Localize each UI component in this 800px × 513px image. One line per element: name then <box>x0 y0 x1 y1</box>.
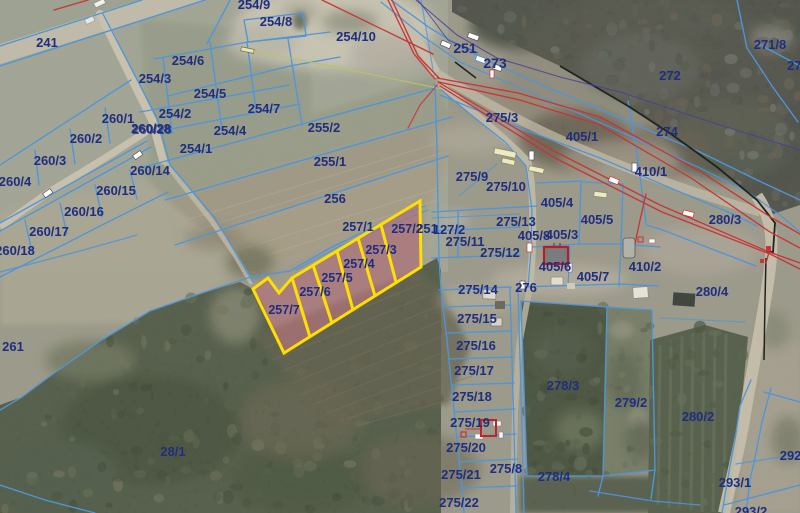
svg-text:260/17: 260/17 <box>29 224 69 239</box>
svg-text:257/7: 257/7 <box>268 303 299 317</box>
svg-text:275/12: 275/12 <box>480 245 520 260</box>
svg-text:254/5: 254/5 <box>194 86 227 101</box>
svg-text:405/5: 405/5 <box>581 212 614 227</box>
svg-text:405/4: 405/4 <box>541 195 574 210</box>
svg-text:260/4: 260/4 <box>0 174 32 189</box>
svg-text:405/6: 405/6 <box>539 259 572 274</box>
svg-text:260/3: 260/3 <box>34 153 67 168</box>
svg-text:255/2: 255/2 <box>308 120 341 135</box>
svg-text:275/3: 275/3 <box>486 110 519 125</box>
svg-text:278/4: 278/4 <box>538 469 571 484</box>
svg-text:275/11: 275/11 <box>445 234 484 249</box>
svg-text:405/1: 405/1 <box>566 129 599 144</box>
svg-text:293/1: 293/1 <box>719 475 752 490</box>
svg-text:280/2: 280/2 <box>682 409 715 424</box>
svg-text:275/17: 275/17 <box>454 363 494 378</box>
svg-text:410/2: 410/2 <box>629 259 662 274</box>
svg-text:274: 274 <box>656 124 678 139</box>
svg-text:254/3: 254/3 <box>139 71 172 86</box>
svg-text:255/1: 255/1 <box>314 154 347 169</box>
svg-text:254/4: 254/4 <box>214 123 247 138</box>
svg-text:293/2: 293/2 <box>735 504 768 513</box>
svg-text:256: 256 <box>324 191 346 206</box>
svg-text:410/1: 410/1 <box>635 164 668 179</box>
svg-text:275/13: 275/13 <box>496 214 536 229</box>
svg-text:275/10: 275/10 <box>486 179 526 194</box>
svg-text:278/3: 278/3 <box>547 378 580 393</box>
svg-text:254/10: 254/10 <box>336 29 376 44</box>
svg-text:275/19: 275/19 <box>450 415 490 430</box>
svg-text:257/1: 257/1 <box>342 220 373 234</box>
svg-text:275/14: 275/14 <box>458 282 499 297</box>
svg-text:280/4: 280/4 <box>696 284 729 299</box>
svg-text:260/28: 260/28 <box>132 122 172 137</box>
svg-text:28/1: 28/1 <box>160 444 185 459</box>
svg-text:405/7: 405/7 <box>577 269 610 284</box>
svg-text:275/22: 275/22 <box>439 495 479 510</box>
svg-text:254/2: 254/2 <box>159 106 192 121</box>
svg-text:273: 273 <box>483 55 507 71</box>
svg-text:276: 276 <box>515 280 537 295</box>
svg-text:254/9: 254/9 <box>238 0 271 12</box>
svg-text:260/15: 260/15 <box>96 183 136 198</box>
svg-text:261: 261 <box>2 339 24 354</box>
svg-text:275/8: 275/8 <box>490 461 523 476</box>
svg-text:241: 241 <box>36 35 58 50</box>
svg-text:260/1: 260/1 <box>102 111 135 126</box>
svg-text:275/15: 275/15 <box>457 311 497 326</box>
svg-text:275/16: 275/16 <box>456 338 496 353</box>
svg-text:271/8: 271/8 <box>754 37 787 52</box>
svg-text:257/6: 257/6 <box>299 285 330 299</box>
svg-text:260/2: 260/2 <box>70 131 103 146</box>
svg-text:292/3: 292/3 <box>780 448 800 463</box>
svg-text:257/4: 257/4 <box>343 257 374 271</box>
svg-text:279/2: 279/2 <box>615 395 648 410</box>
svg-text:257/3: 257/3 <box>365 243 396 257</box>
svg-text:275/9: 275/9 <box>456 169 489 184</box>
svg-text:254/6: 254/6 <box>172 53 205 68</box>
svg-text:275/18: 275/18 <box>452 389 492 404</box>
svg-text:280/3: 280/3 <box>709 212 742 227</box>
svg-text:271: 271 <box>787 58 800 73</box>
svg-text:275/20: 275/20 <box>446 440 486 455</box>
svg-text:254/8: 254/8 <box>260 14 293 29</box>
svg-text:254/1: 254/1 <box>180 141 213 156</box>
svg-text:405/3: 405/3 <box>546 227 579 242</box>
svg-text:272: 272 <box>659 68 681 83</box>
svg-text:257/2: 257/2 <box>391 222 422 236</box>
svg-text:260/18: 260/18 <box>0 243 35 258</box>
svg-text:260/14: 260/14 <box>130 163 171 178</box>
svg-text:260/16: 260/16 <box>64 204 104 219</box>
svg-text:257/5: 257/5 <box>321 271 352 285</box>
svg-text:254/7: 254/7 <box>248 101 281 116</box>
svg-text:251: 251 <box>453 40 477 56</box>
svg-text:275/21: 275/21 <box>441 467 481 482</box>
